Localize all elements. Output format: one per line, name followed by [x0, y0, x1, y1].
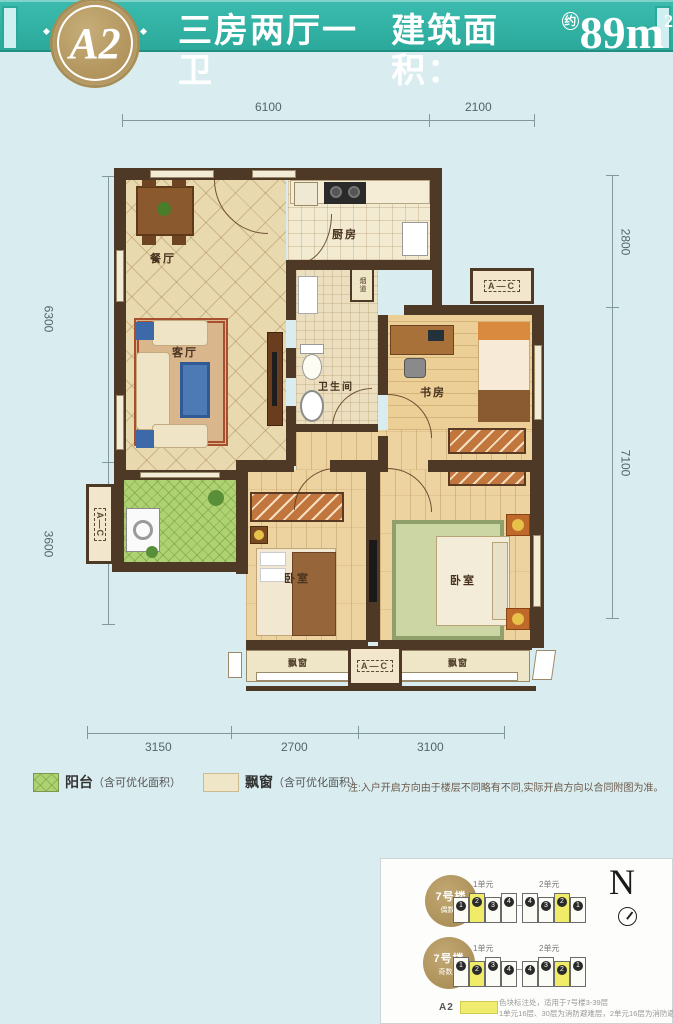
unit-number: 2: [472, 965, 482, 975]
bath-cabinet: [298, 276, 318, 314]
compass-icon: [618, 907, 637, 926]
lamp: [512, 613, 524, 625]
bay-window-left-sill: [256, 672, 360, 681]
unit-cell: 1: [570, 897, 586, 923]
wall: [246, 686, 536, 691]
burner: [330, 186, 342, 198]
unit-number: 3: [541, 901, 551, 911]
dim-left-2: 3600: [41, 531, 55, 558]
tick: [87, 726, 88, 739]
unit-number: 3: [488, 901, 498, 911]
room-label-dining: 餐厅: [150, 250, 176, 266]
unit-cell: 1: [453, 957, 469, 987]
room-label-kitchen: 厨房: [332, 226, 358, 242]
dim-right-1: 2800: [618, 229, 632, 256]
dim-top-1: 6100: [255, 100, 282, 114]
legend-balcony-note: （含可优化面积）: [93, 774, 181, 790]
dim-bottom-2: 2700: [281, 740, 308, 754]
balcony-plant: [208, 490, 224, 506]
tick: [606, 618, 619, 619]
tick: [534, 114, 535, 127]
unit-label: 2单元: [539, 879, 559, 890]
unit-code: A2: [69, 18, 120, 69]
compass-n: N: [609, 861, 635, 903]
ac-platform-top: A—C: [470, 268, 534, 304]
unit-number: 1: [573, 901, 583, 911]
inset-a2-swatch: [460, 1001, 498, 1014]
dim-bottom-1: 3150: [145, 740, 172, 754]
toilet: [302, 354, 322, 380]
window: [116, 250, 124, 302]
dining-chair: [142, 236, 156, 245]
unit-cell-highlight: 2: [469, 893, 485, 923]
room-label-bedroom1: 卧室: [284, 570, 310, 586]
study-bed-blanket: [478, 390, 530, 422]
banner-left-cap: [2, 6, 18, 50]
wall: [286, 348, 296, 378]
bay-label-left: 飘窗: [288, 656, 308, 669]
unit-cell-highlight: 2: [554, 961, 570, 987]
dim-line-top: [122, 120, 535, 121]
tick: [606, 307, 619, 308]
lamp: [254, 530, 264, 540]
inset-note-2: 1单元16层、30层为消防避难层，2单元16层为消防避难层: [499, 1008, 673, 1019]
wardrobe: [448, 428, 526, 454]
approx-mark: 约: [562, 12, 579, 30]
lamp: [512, 519, 524, 531]
window: [150, 170, 214, 178]
pillow: [260, 552, 286, 566]
area-value: 89m: [580, 12, 664, 54]
desk-chair: [404, 358, 426, 378]
side-table: [136, 322, 154, 340]
toilet-tank: [300, 344, 324, 354]
unit-label: 1单元: [473, 879, 493, 890]
unit-cell: 1: [570, 957, 586, 987]
wall: [428, 460, 544, 472]
unit-label: 2单元: [539, 943, 559, 954]
inset-note-1: 色块标注处，适用于7号楼3-39层: [499, 997, 673, 1008]
unit-number: 3: [488, 961, 498, 971]
tv-screen: [272, 352, 277, 406]
unit-cell: 4: [522, 893, 538, 923]
dim-bottom-3: 3100: [417, 740, 444, 754]
room-label-bedroom2: 卧室: [450, 572, 476, 588]
unit-number: 4: [525, 897, 535, 907]
unit-cell: 3: [538, 897, 554, 923]
tick: [102, 624, 115, 625]
unit-cell: 4: [501, 961, 517, 987]
building-outline-odd: 1 2 3 4 4 3 2 1: [453, 957, 586, 987]
sofa-bottom: [152, 424, 208, 448]
tick: [122, 114, 123, 127]
unit-label: 1单元: [473, 943, 493, 954]
unit-cell: 3: [485, 897, 501, 923]
wall: [114, 480, 124, 570]
desk: [390, 325, 454, 355]
unit-number: 2: [557, 897, 567, 907]
wall: [430, 168, 442, 270]
room-label-bath: 卫生间: [318, 378, 354, 393]
window: [534, 345, 542, 420]
bedroom-tv: [369, 540, 377, 602]
dim-left-1: 6300: [41, 306, 55, 333]
washer-drum: [133, 520, 153, 540]
tick: [231, 726, 232, 739]
header-title: 三房两厅一卫 建筑面积： 约 89m 2: [178, 12, 673, 92]
ac-label: A—C: [94, 508, 106, 541]
bay-label-right: 飘窗: [448, 656, 468, 669]
unit-number: 4: [525, 965, 535, 975]
building-outline-even: 1 2 3 4 4 3 2 1: [453, 893, 586, 923]
balcony-plant: [146, 546, 158, 558]
unit-number: 1: [456, 901, 466, 911]
sofa-main: [136, 352, 170, 430]
wall: [404, 305, 544, 315]
tick: [606, 175, 619, 176]
kitchen-sink: [402, 222, 428, 256]
unit-cell: 3: [485, 957, 501, 987]
window: [140, 472, 220, 478]
dim-line-right: [612, 175, 613, 619]
ac-label: A—C: [484, 280, 520, 292]
coffee-table: [180, 362, 210, 418]
dim-right-2: 7100: [618, 450, 632, 477]
unit-number: 1: [573, 961, 583, 971]
bed-small-blanket: [292, 552, 336, 636]
window: [252, 170, 296, 178]
burner: [348, 186, 360, 198]
dim-line-bottom: [87, 733, 505, 734]
unit-number: 3: [541, 961, 551, 971]
ac-label: A—C: [357, 660, 393, 672]
unit-cell: 4: [522, 961, 538, 987]
sofa-top: [152, 320, 208, 346]
side-table: [136, 430, 154, 448]
building-location-panel: 7号楼 偶数层 7号楼 奇数层 1单元 2单元 1 2 3 4 4 3 2 1 …: [380, 858, 673, 1024]
study-bed-pillow: [478, 322, 530, 340]
fridge: [294, 182, 318, 206]
dim-top-2: 2100: [465, 100, 492, 114]
flue-label: 烟道: [357, 277, 367, 293]
tick: [358, 726, 359, 739]
unit-number: 2: [472, 897, 482, 907]
corner-window: [228, 652, 242, 678]
area-superscript: 2: [664, 12, 673, 30]
wall: [286, 270, 296, 320]
area-label: 建筑面积：: [391, 12, 558, 92]
pillow: [260, 568, 286, 582]
corner-window: [532, 650, 556, 680]
wall: [236, 470, 248, 574]
window: [533, 535, 541, 607]
unit-cell-highlight: 2: [469, 961, 485, 987]
wall: [378, 315, 388, 395]
legend-bay-label: 飘窗: [245, 772, 273, 792]
flue-shaft: 烟道: [350, 268, 374, 302]
unit-cell: 3: [538, 957, 554, 987]
wall: [286, 406, 296, 466]
unit-cell: 1: [453, 897, 469, 923]
window: [116, 395, 124, 450]
laptop: [428, 330, 444, 341]
disclaimer-note: 注:入户开启方向由于楼层不同略有不同,实际开启方向以合同附图为准。: [348, 779, 664, 794]
unit-number: 4: [504, 897, 514, 907]
wall: [112, 562, 246, 572]
inset-a2-key: A2: [439, 1001, 498, 1014]
tick: [429, 114, 430, 127]
unit-cell: 4: [501, 893, 517, 923]
bay-window-right-sill: [394, 672, 518, 681]
legend-bay-swatch: [203, 773, 239, 792]
layout-title: 三房两厅一卫: [178, 12, 378, 92]
legend-balcony-swatch: [33, 773, 59, 792]
ac-platform-bottom: A—C: [348, 646, 402, 686]
table-plant: [157, 202, 171, 216]
bath-sink: [300, 390, 324, 422]
room-label-living: 客厅: [172, 344, 198, 360]
legend-balcony-label: 阳台: [65, 772, 93, 792]
room-label-study: 书房: [420, 384, 446, 400]
unit-number: 1: [456, 961, 466, 971]
unit-cell-highlight: 2: [554, 893, 570, 923]
inset-notes: 色块标注处，适用于7号楼3-39层 1单元16层、30层为消防避难层，2单元16…: [499, 997, 673, 1019]
ac-platform-left: A—C: [86, 484, 114, 564]
legend-row: 阳台 （含可优化面积） 飘窗 （含可优化面积）: [33, 772, 361, 792]
dining-chair: [172, 236, 186, 245]
unit-number: 2: [557, 965, 567, 975]
unit-number: 4: [504, 965, 514, 975]
tick: [504, 726, 505, 739]
unit-badge: A2: [53, 1, 137, 85]
inset-a2-label: A2: [439, 1002, 454, 1013]
